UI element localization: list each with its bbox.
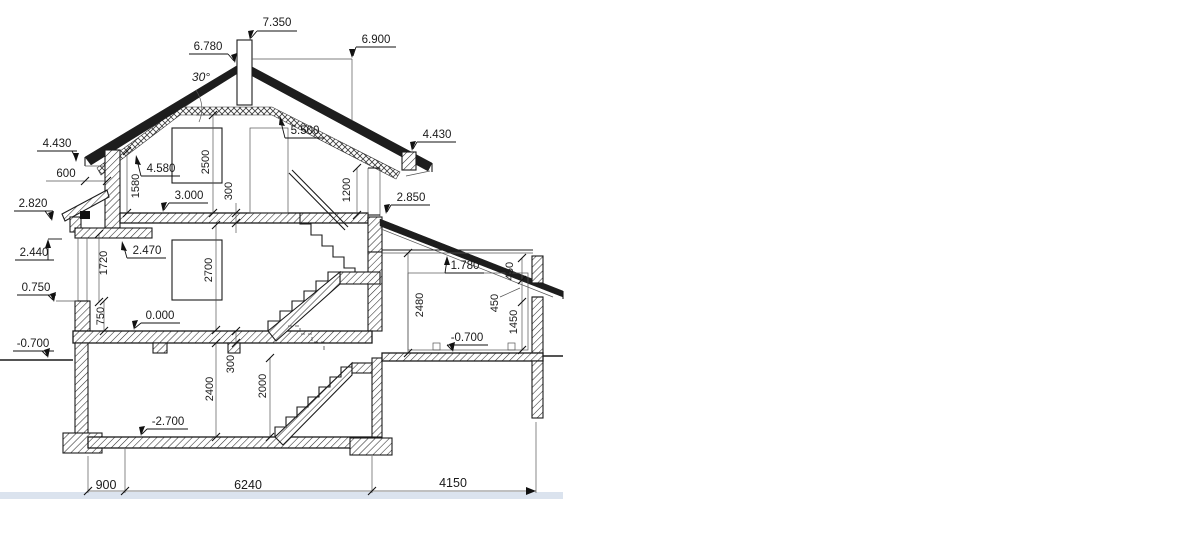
wall-right-gf xyxy=(368,252,382,331)
elevation-kneewall-top: 4.580 xyxy=(147,163,176,175)
gf-wall-left-plinth xyxy=(75,301,90,331)
dim-attic-slab: 300 xyxy=(223,182,235,200)
elevation-attic-floor: 3.000 xyxy=(175,190,204,202)
chimney xyxy=(237,40,252,105)
elevation-ground-floor: 0.000 xyxy=(146,310,175,322)
elevation-canopy-soffit: 2.440 xyxy=(20,247,49,259)
dim-attic-room-height: 2500 xyxy=(200,150,212,174)
dim-eaves-overhang: 600 xyxy=(56,168,75,180)
attic-window xyxy=(172,128,222,183)
ground-floor-slab xyxy=(73,331,372,343)
basement-wall-left xyxy=(75,343,88,437)
dim-annex-450-upper: 450 xyxy=(504,262,516,280)
dim-annex-room: 2480 xyxy=(414,293,426,317)
elevation-annex-floor: -0.700 xyxy=(451,332,484,344)
elevation-sill-left: 0.750 xyxy=(22,282,51,294)
dim-left-bay: 900 xyxy=(96,478,117,492)
basement-stair-landing xyxy=(352,363,372,373)
annex-detail xyxy=(508,343,515,350)
roof-angle-label: 30° xyxy=(192,70,210,84)
kneewall-right xyxy=(402,152,416,170)
dim-annex-sill: 1450 xyxy=(508,310,520,334)
elevation-eaves-left: 4.430 xyxy=(43,138,72,150)
stairwell-opening xyxy=(250,128,288,213)
basement-floor-slab xyxy=(88,437,372,448)
elevation-eaves-right: 4.430 xyxy=(423,129,452,141)
elevation-annex-roof: 2.850 xyxy=(397,192,426,204)
soffit-right xyxy=(406,171,430,176)
slab-downstand xyxy=(153,343,167,353)
footer-strip xyxy=(0,492,563,499)
elevation-gf-ceiling: 2.470 xyxy=(133,245,162,257)
dim-gf-window: 1720 xyxy=(98,251,110,275)
footing-right xyxy=(350,438,392,455)
dim-upper-window: 1200 xyxy=(341,178,353,202)
dim-basement-room: 2400 xyxy=(204,377,216,401)
gf-lintel-band xyxy=(75,228,152,238)
annex-wall-right-lower xyxy=(532,297,543,353)
basement-wall-right xyxy=(372,358,382,437)
annex-detail xyxy=(433,343,440,350)
elevation-ground-level: -0.700 xyxy=(17,338,50,350)
section-drawing: 7.350 6.780 6.900 30° 5.500 4.430 600 4.… xyxy=(0,0,1191,544)
dim-annex-450-lower: 450 xyxy=(489,294,501,312)
stair-landing xyxy=(340,272,380,284)
dim-gf-slab: 300 xyxy=(225,355,237,373)
annex-foundation-right xyxy=(532,361,543,418)
dim-main-span: 6240 xyxy=(234,478,262,492)
architectural-section-sheet: 7.350 6.780 6.900 30° 5.500 4.430 600 4.… xyxy=(0,0,1191,544)
kneewall-left xyxy=(105,150,120,228)
elevation-collar: 5.500 xyxy=(291,125,320,137)
canopy-beam xyxy=(80,211,90,219)
elevation-roof-right: 6.900 xyxy=(362,34,391,46)
dim-basement-stair-clearance: 2000 xyxy=(257,374,269,398)
dim-annex-span: 4150 xyxy=(439,476,467,490)
annex-wall-right-upper xyxy=(532,256,543,283)
elevation-basement-floor: -2.700 xyxy=(152,416,185,428)
dim-gf-room: 2700 xyxy=(203,258,215,282)
elevation-chimney-top: 7.350 xyxy=(263,17,292,29)
attic-floor-slab xyxy=(120,213,368,223)
roof-insulation xyxy=(97,107,400,179)
elevation-ridge: 6.780 xyxy=(194,41,223,53)
dim-kneewall-height: 1580 xyxy=(130,174,142,198)
elevation-canopy-top: 2.820 xyxy=(19,198,48,210)
elevation-annex-ceiling: 1.780 xyxy=(451,260,480,272)
dim-plinth: 750 xyxy=(95,307,107,325)
